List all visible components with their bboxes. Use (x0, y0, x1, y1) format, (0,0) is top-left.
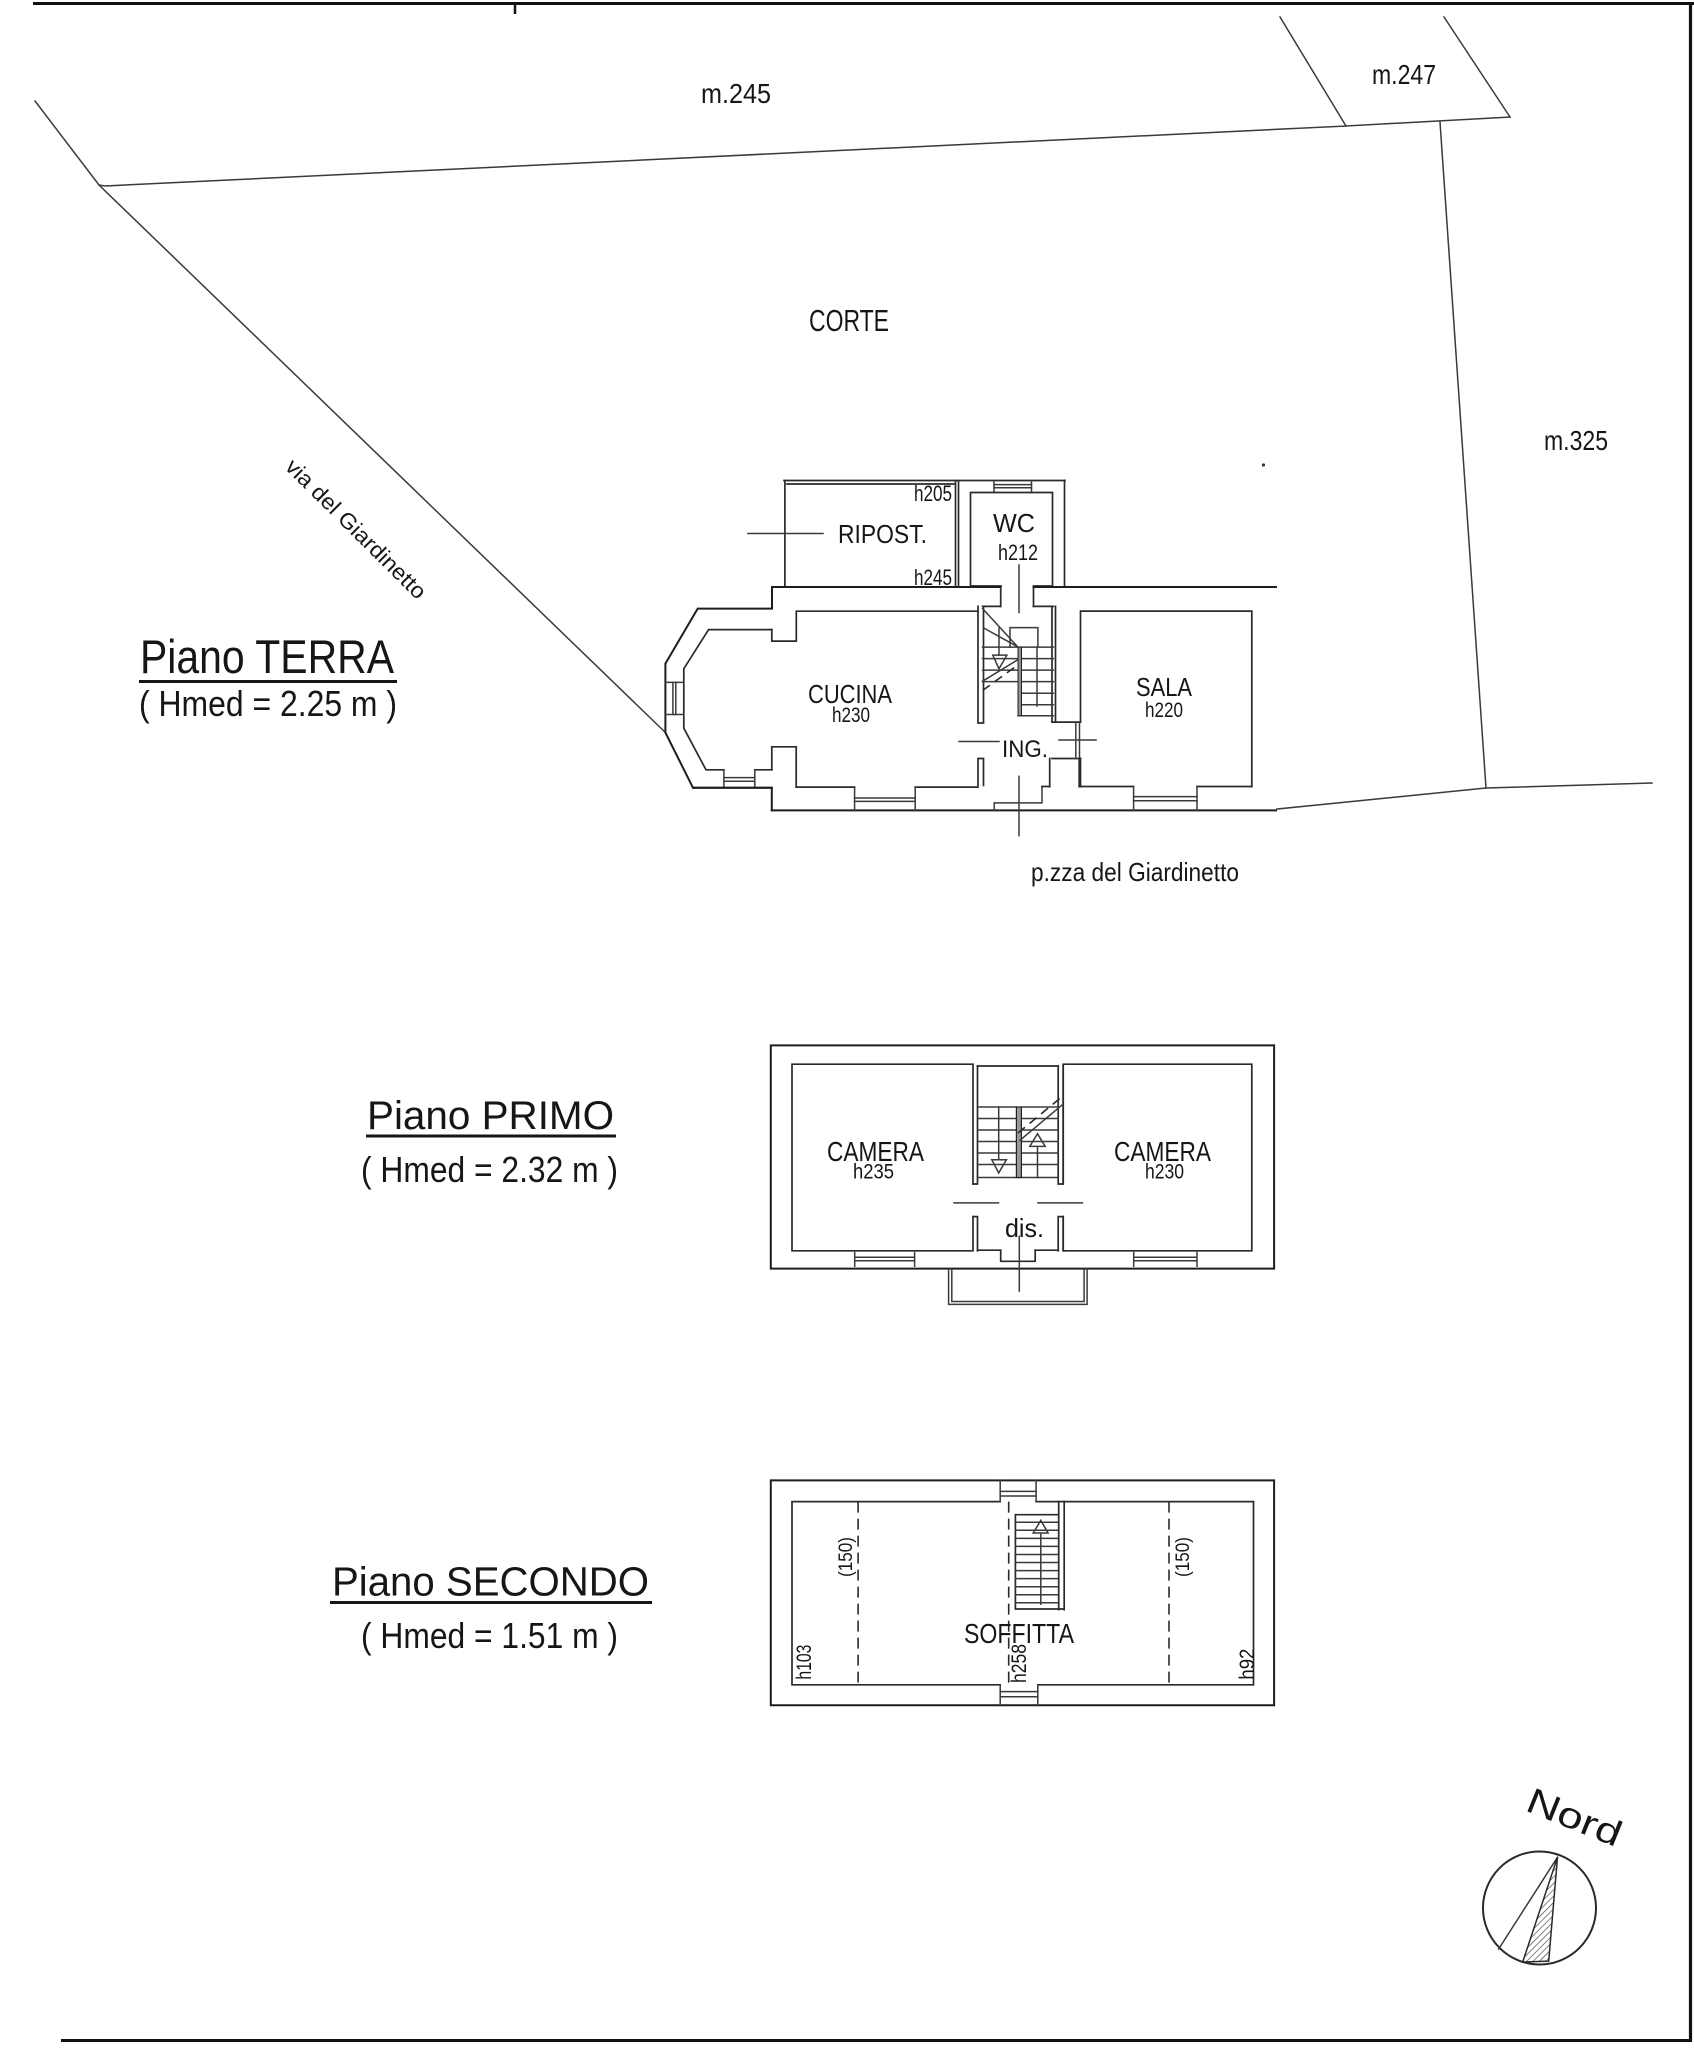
svg-text:WC: WC (993, 508, 1035, 538)
svg-text:ING.: ING. (1002, 736, 1048, 763)
svg-text:(150): (150) (1173, 1537, 1194, 1577)
svg-text:Piano PRIMO: Piano PRIMO (367, 1094, 614, 1138)
svg-text:dis.: dis. (1005, 1213, 1044, 1243)
svg-text:h92: h92 (1236, 1649, 1259, 1680)
svg-text:( Hmed = 2.32 m ): ( Hmed = 2.32 m ) (361, 1149, 618, 1190)
svg-text:Piano TERRA: Piano TERRA (140, 630, 395, 683)
svg-text:(150): (150) (836, 1537, 857, 1577)
svg-text:Piano SECONDO: Piano SECONDO (332, 1559, 649, 1605)
svg-text:SALA: SALA (1136, 672, 1193, 702)
svg-text:h235: h235 (853, 1161, 894, 1184)
svg-text:h230: h230 (832, 704, 870, 727)
svg-text:( Hmed = 1.51 m ): ( Hmed = 1.51 m ) (361, 1615, 618, 1656)
svg-text:h258: h258 (1008, 1644, 1031, 1683)
svg-text:h212: h212 (998, 540, 1038, 565)
svg-text:CORTE: CORTE (809, 303, 889, 338)
svg-text:m.247: m.247 (1372, 59, 1436, 90)
svg-text:h103: h103 (793, 1645, 816, 1680)
svg-text:m.325: m.325 (1544, 425, 1608, 456)
svg-text:h205: h205 (914, 481, 952, 506)
svg-text:p.zza del Giardinetto: p.zza del Giardinetto (1031, 857, 1239, 887)
svg-text:RIPOST.: RIPOST. (838, 519, 927, 549)
svg-text:h220: h220 (1145, 699, 1183, 722)
svg-text:m.245: m.245 (701, 78, 771, 109)
svg-text:( Hmed = 2.25 m ): ( Hmed = 2.25 m ) (139, 683, 397, 724)
svg-text:h230: h230 (1145, 1161, 1184, 1184)
